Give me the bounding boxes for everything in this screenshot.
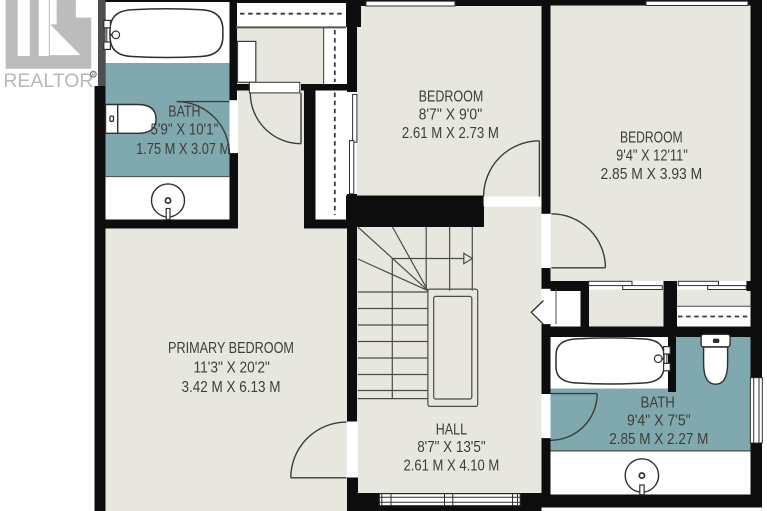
svg-text:PRIMARY BEDROOM: PRIMARY BEDROOM xyxy=(168,340,294,357)
svg-text:BATH: BATH xyxy=(641,395,675,412)
svg-text:1.75 M X 3.07 M: 1.75 M X 3.07 M xyxy=(136,141,230,158)
svg-text:BEDROOM: BEDROOM xyxy=(419,89,484,106)
svg-text:9'4" X 7'5": 9'4" X 7'5" xyxy=(627,412,691,429)
svg-text:8'7" X 13'5": 8'7" X 13'5" xyxy=(417,439,485,456)
svg-text:2.61 M X 2.73 M: 2.61 M X 2.73 M xyxy=(402,125,499,142)
svg-text:HALL: HALL xyxy=(436,421,467,438)
svg-text:5'9" X 10'1": 5'9" X 10'1" xyxy=(151,121,219,138)
svg-text:8'7" X 9'0": 8'7" X 9'0" xyxy=(419,107,483,124)
svg-text:BATH: BATH xyxy=(168,104,200,121)
svg-text:9'4" X 12'11": 9'4" X 12'11" xyxy=(616,148,688,165)
svg-text:11'3" X 20'2": 11'3" X 20'2" xyxy=(194,359,270,376)
svg-text:3.42 M X 6.13 M: 3.42 M X 6.13 M xyxy=(182,379,281,396)
svg-text:2.85 M X 2.27 M: 2.85 M X 2.27 M xyxy=(609,431,708,448)
svg-text:BEDROOM: BEDROOM xyxy=(620,130,683,147)
svg-text:R: R xyxy=(91,72,95,78)
svg-text:REALTOR: REALTOR xyxy=(3,71,93,92)
svg-text:2.85 M X 3.93 M: 2.85 M X 3.93 M xyxy=(600,166,702,183)
svg-text:2.61 M X 4.10 M: 2.61 M X 4.10 M xyxy=(404,458,500,475)
